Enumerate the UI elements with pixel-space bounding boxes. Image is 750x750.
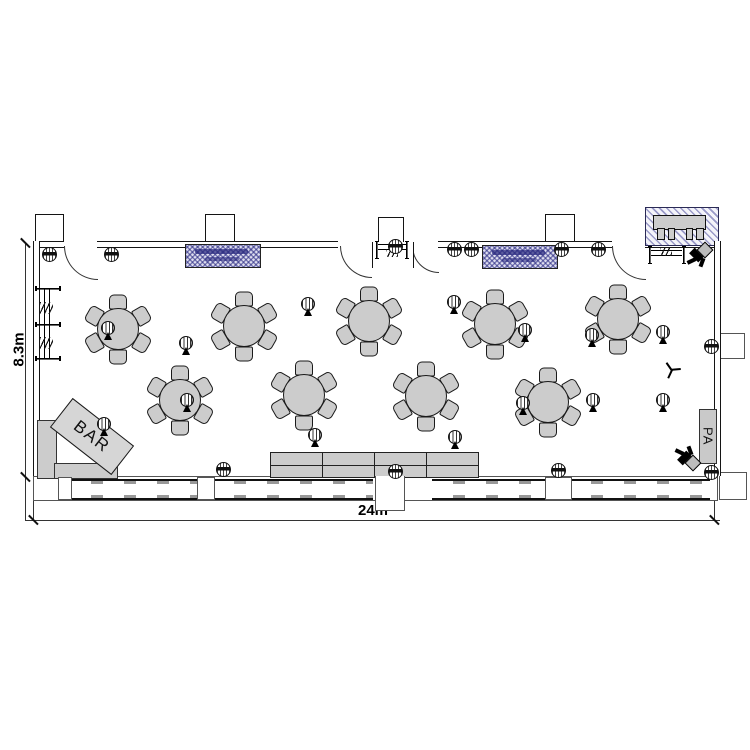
chair [486, 289, 504, 304]
plant-base [659, 336, 667, 344]
plant-base [100, 428, 108, 436]
round-table [267, 358, 339, 430]
wall-rail-crossbar [35, 356, 61, 361]
dimension-riser [33, 499, 34, 520]
plant-base [588, 339, 596, 347]
barrier-hatch-marks [660, 247, 672, 256]
plant-base [521, 334, 529, 342]
width-dimension-line [25, 520, 720, 521]
round-table [81, 292, 153, 364]
plant-on-stand-icon [301, 297, 315, 318]
plant-base [519, 407, 527, 415]
plant-base [183, 404, 191, 412]
hatched-service-zone [185, 244, 261, 268]
trestle-table-leg [657, 228, 665, 240]
round-table [332, 284, 404, 356]
barrier-hatch-marks [40, 337, 53, 349]
plant-on-stand-icon [656, 393, 670, 414]
chair [417, 361, 435, 376]
table-top [474, 303, 516, 345]
chair [486, 344, 504, 359]
plant-on-stand-icon [586, 393, 600, 414]
chair [235, 346, 253, 361]
plant-on-stand-icon [101, 321, 115, 342]
plant-on-stand-icon [516, 396, 530, 417]
tripod-stand-icon [664, 362, 680, 378]
round-table [207, 289, 279, 361]
chair [539, 367, 557, 382]
table-top [283, 374, 325, 416]
buffet-table [270, 452, 479, 478]
chair [109, 349, 127, 364]
window-strip [70, 479, 197, 500]
chair [235, 291, 253, 306]
plant-on-stand-icon [585, 328, 599, 349]
chair [295, 360, 313, 375]
plant-base [304, 308, 312, 316]
chair [171, 420, 189, 435]
round-table [143, 363, 215, 435]
speaker-leg [687, 257, 697, 264]
plant-base [659, 404, 667, 412]
chair [609, 339, 627, 354]
dimension-riser [714, 499, 715, 520]
trestle-table-leg [696, 228, 704, 240]
chair [360, 286, 378, 301]
chair [360, 341, 378, 356]
door-swing-arc [340, 246, 372, 278]
stool-icon [591, 242, 606, 257]
wall-extension [719, 333, 745, 359]
table-top [527, 381, 569, 423]
barrier-post [375, 241, 379, 259]
plant-on-stand-icon [518, 323, 532, 344]
plant-base [450, 306, 458, 314]
stool-icon [704, 339, 719, 354]
stool-icon [464, 242, 479, 257]
barrier-post [682, 246, 686, 264]
table-top [405, 375, 447, 417]
buffet-divider [271, 465, 478, 466]
column-pillar [545, 214, 575, 243]
speaker-icon [675, 446, 701, 470]
plant-base [589, 404, 597, 412]
plant-base [182, 347, 190, 355]
plant-on-stand-icon [308, 428, 322, 449]
barrier-hatch-marks [40, 302, 53, 314]
chair [539, 422, 557, 437]
trestle-table-leg [668, 228, 675, 240]
barrier-post [648, 246, 652, 264]
stool-icon [104, 247, 119, 262]
chair [417, 416, 435, 431]
stool-icon [388, 239, 403, 254]
door-swing-arc [64, 246, 98, 280]
height-dimension-label: 8.3m [11, 328, 28, 372]
wall-rail-crossbar [35, 322, 61, 327]
barrier-post [405, 241, 409, 259]
stool-icon [554, 242, 569, 257]
plant-base [104, 332, 112, 340]
stool-icon [42, 247, 57, 262]
plant-on-stand-icon [447, 295, 461, 316]
wall-extension [719, 472, 747, 500]
table-top [597, 298, 639, 340]
plant-on-stand-icon [97, 417, 111, 438]
speaker-leg [675, 448, 685, 455]
table-top [223, 305, 265, 347]
wall-rail-crossbar [35, 286, 61, 291]
plant-on-stand-icon [180, 393, 194, 414]
column-pillar [205, 214, 235, 243]
chair [109, 294, 127, 309]
exit-bay [375, 476, 405, 511]
plant-on-stand-icon [179, 336, 193, 357]
plant-base [451, 441, 459, 449]
pa-label: PA [701, 427, 716, 445]
hatched-service-zone [482, 245, 558, 269]
column-pillar [35, 214, 64, 243]
wall-pier [58, 477, 72, 500]
round-table [389, 359, 461, 431]
door-swing-arc [412, 246, 439, 273]
pa-speaker-stand: PA [699, 409, 717, 464]
window-strip [432, 479, 545, 500]
chair [171, 365, 189, 380]
chair [609, 284, 627, 299]
stool-icon [704, 465, 719, 480]
stool-icon [216, 462, 231, 477]
window-strip [570, 479, 710, 500]
stool-icon [551, 463, 566, 478]
wall-pier [545, 477, 572, 500]
wall-pier [197, 477, 215, 500]
stool-icon [388, 464, 403, 479]
speaker-icon [687, 243, 713, 267]
stool-icon [447, 242, 462, 257]
plant-on-stand-icon [656, 325, 670, 346]
plant-on-stand-icon [448, 430, 462, 451]
trestle-table-leg [686, 228, 693, 240]
banquet-floor-plan: BAR PA 24m 8.3m [0, 0, 750, 750]
plant-base [311, 439, 319, 447]
door-swing-arc [612, 246, 646, 280]
window-strip [213, 479, 373, 500]
table-top [348, 300, 390, 342]
